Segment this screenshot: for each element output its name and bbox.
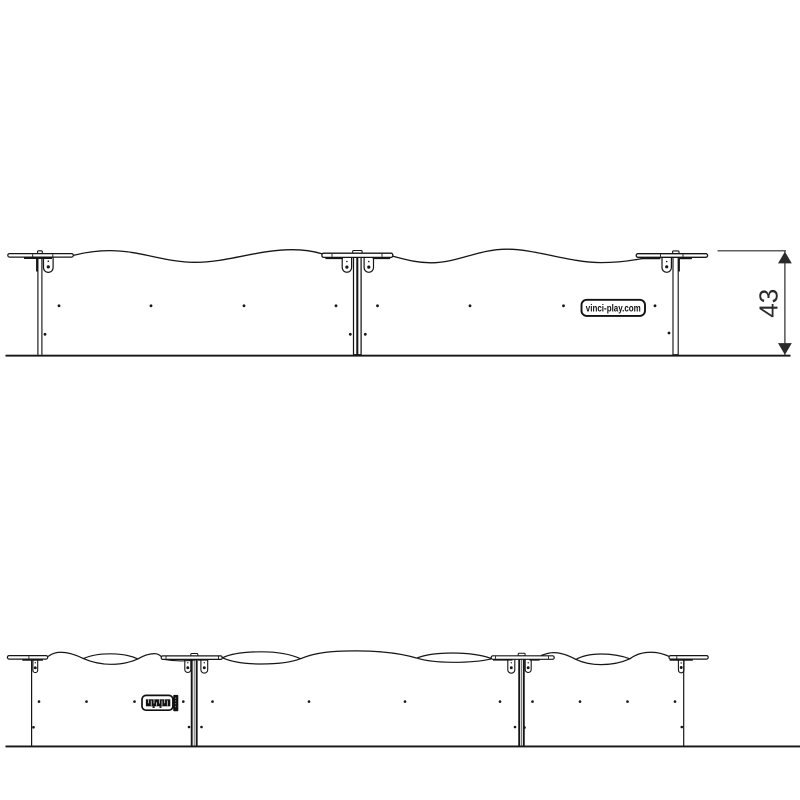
svg-text:vinci-play.com: vinci-play.com xyxy=(586,304,641,315)
svg-text:43: 43 xyxy=(754,289,784,318)
